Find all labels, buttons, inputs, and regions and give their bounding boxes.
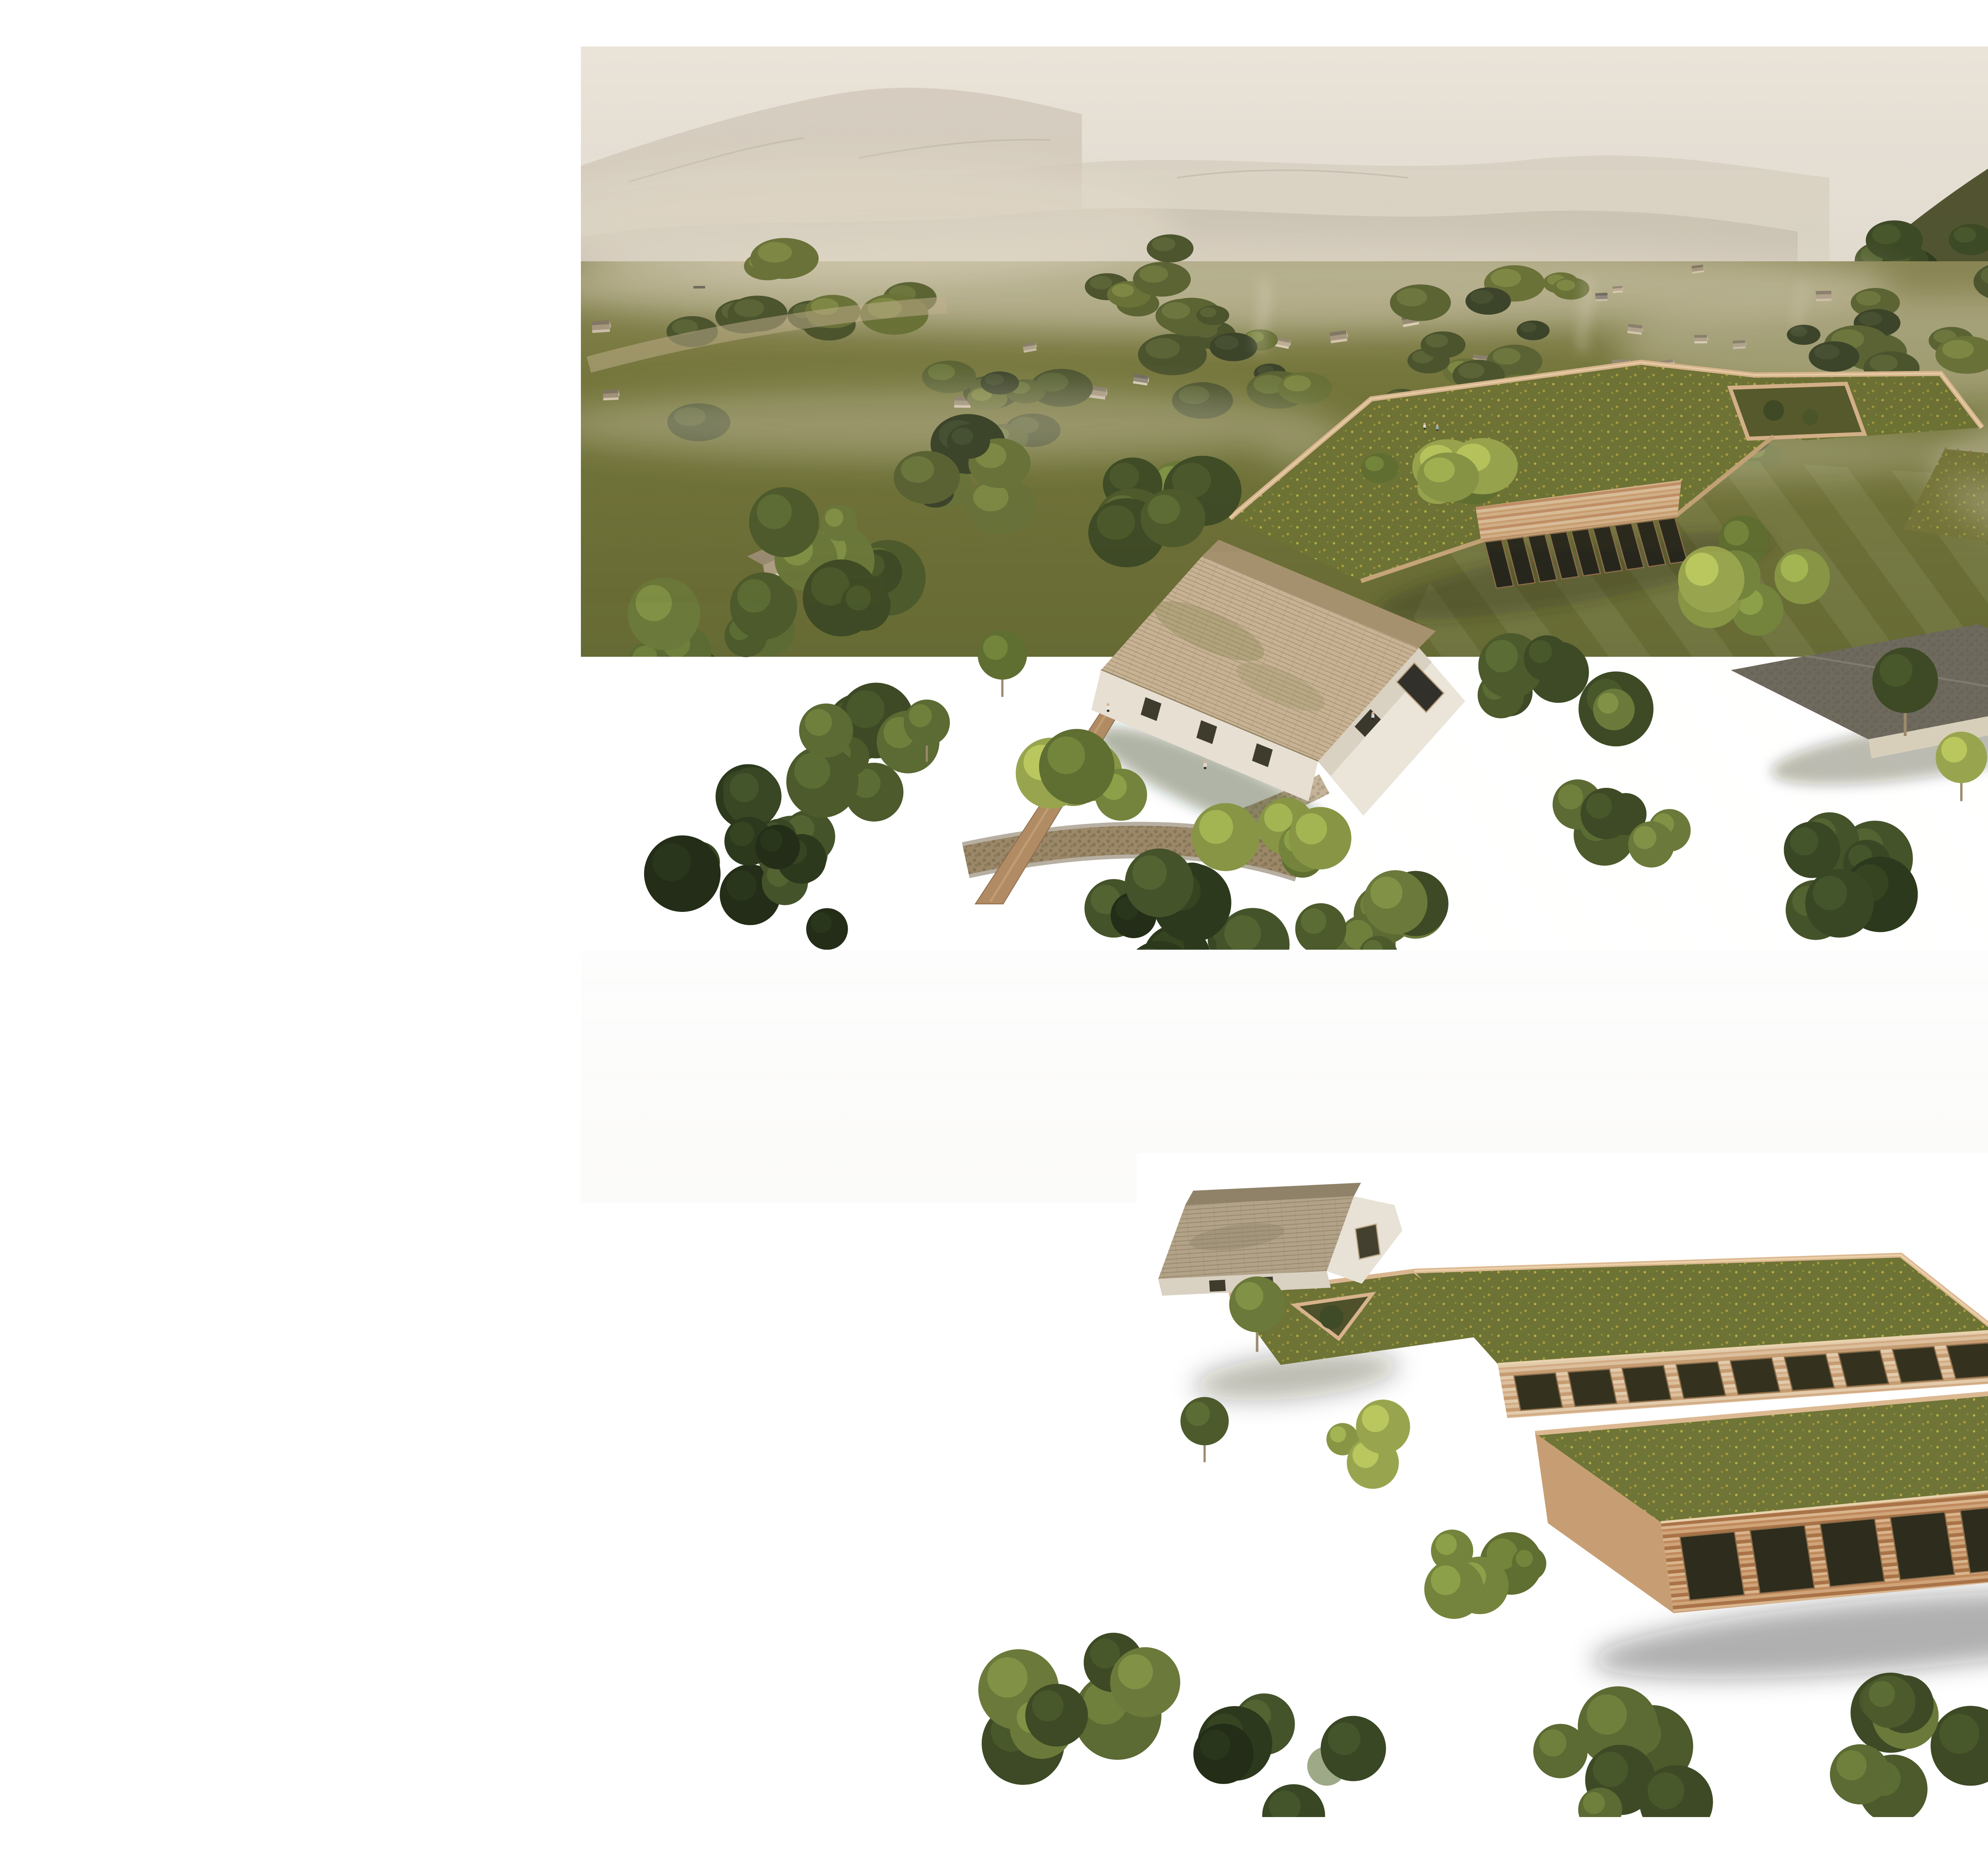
wordmark-letter: R (278, 814, 287, 830)
render-aerial-context (581, 47, 1988, 950)
project-description: Raportat la pacienții cu Alzheimer, iden… (101, 895, 527, 1041)
alzheimer-wordmark: ALZHEIMER (101, 798, 531, 845)
color-grade-overlay (581, 950, 1988, 1817)
presentation-board: CENTRU DE ÎNGRIJIRE PENTRU PERSOANELE CU… (0, 0, 1988, 1860)
color-grade-overlay (581, 47, 1988, 950)
wordmark-letter: E (199, 807, 208, 823)
wordmark-letter: I (222, 798, 226, 814)
wordmark-letter: L (123, 798, 132, 814)
wordmark-letter: Z (147, 798, 155, 814)
render-aerial-closeup (581, 950, 1988, 1817)
page-title: CENTRU DE ÎNGRIJIRE PENTRU PERSOANELE CU… (101, 780, 530, 795)
wordmark-letter: E (261, 798, 270, 814)
aerial-closeup-scene (581, 950, 1988, 1817)
aerial-context-scene (581, 47, 1988, 950)
wordmark-letter: M (237, 798, 249, 814)
wordmark-letter: A (101, 798, 111, 814)
wordmark-letter: H (170, 814, 180, 830)
